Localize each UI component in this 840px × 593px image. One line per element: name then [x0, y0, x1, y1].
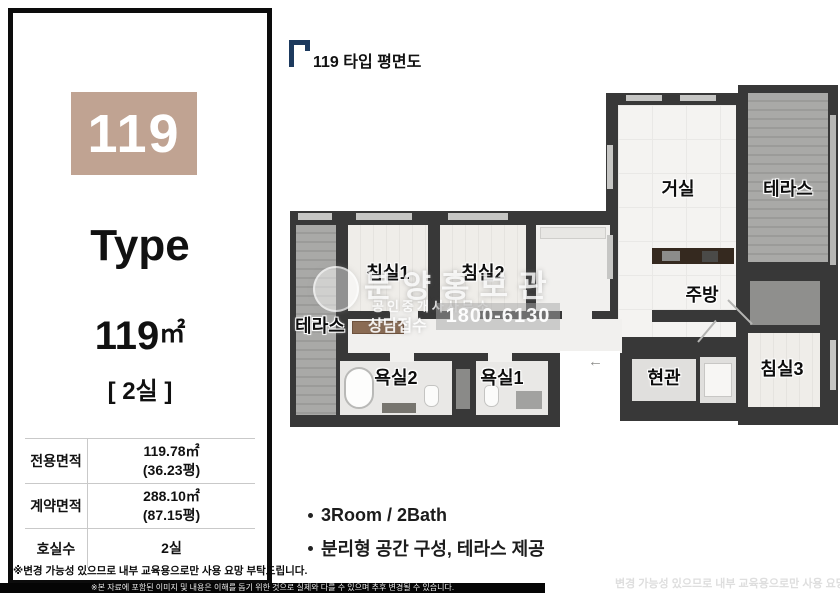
- room-label-terrace-left: 테라스: [295, 312, 345, 338]
- window-terrace-right: [830, 115, 836, 265]
- room-label-bathroom1: 욕실1: [480, 364, 523, 390]
- bathroom2-sink: [382, 403, 416, 413]
- room-label-terrace-top: 테라스: [763, 175, 813, 201]
- plan-title: 119 타입 평면도: [313, 48, 421, 72]
- door-gap-bedroom1: [390, 311, 418, 320]
- area-label: 119㎡: [13, 313, 267, 359]
- window-bedroom1-top: [356, 213, 412, 220]
- bullet-icon: [308, 546, 313, 551]
- room-label-entrance: 현관: [647, 364, 680, 390]
- door-gap-bedroom2: [450, 311, 478, 320]
- brochure-page: 119 Type 119㎡ [ 2실 ] 전용면적 119.78㎡ (36.23…: [0, 0, 840, 593]
- feature-layout: 분리형 공간 구성, 테라스 제공: [321, 535, 545, 561]
- spec-value-line1: 288.10㎡: [88, 487, 255, 506]
- corridor-console: [352, 321, 404, 334]
- bullet-icon: [308, 513, 313, 518]
- bathroom2-toilet: [424, 385, 439, 407]
- entry-arrow-icon: ←: [588, 353, 603, 370]
- type-label: Type: [13, 221, 267, 271]
- spec-value-line1: 119.78㎡: [88, 442, 255, 461]
- room-label-bathroom2: 욕실2: [374, 364, 417, 390]
- spec-label-contract-area: 계약면적: [25, 496, 87, 516]
- unit-info-panel: 119 Type 119㎡ [ 2실 ] 전용면적 119.78㎡ (36.23…: [8, 8, 272, 585]
- spec-label-exclusive-area: 전용면적: [25, 451, 87, 471]
- area-unit: ㎡: [159, 318, 185, 348]
- shoe-closet: [704, 363, 732, 397]
- rooms-count-label: [ 2실 ]: [13, 371, 267, 406]
- room-label-bedroom2: 침실2: [461, 259, 504, 285]
- window-bedroom3-right: [830, 340, 836, 390]
- room-label-bedroom3: 침실3: [760, 355, 803, 381]
- floor-utility: [750, 281, 820, 325]
- feature-room-bath: 3Room / 2Bath: [321, 505, 447, 526]
- window-living-top-1: [626, 95, 662, 101]
- area-value: 119: [95, 314, 160, 358]
- window-living-top-2: [680, 95, 716, 101]
- table-row: 전용면적 119.78㎡ (36.23평): [25, 438, 255, 483]
- unit-number-badge: 119: [71, 92, 197, 175]
- window-living-left-2: [607, 235, 613, 279]
- window-bedroom2-top: [448, 213, 508, 220]
- duct-shaft: [456, 369, 470, 409]
- spec-value-contract-area: 288.10㎡ (87.15평): [87, 484, 255, 528]
- room-label-bedroom1: 침실1: [366, 259, 409, 285]
- list-item: 3Room / 2Bath: [308, 505, 545, 526]
- kitchen-lower-wall: [652, 310, 740, 322]
- table-row: 계약면적 288.10㎡ (87.15평): [25, 483, 255, 528]
- closet-dressing: [540, 227, 606, 239]
- kitchen-sink: [662, 251, 680, 261]
- bottom-disclaimer-bar: ※본 자료에 포함된 이미지 및 내용은 이해를 돕기 위한 것으로 실제와 다…: [0, 583, 545, 593]
- spec-value-line2: (87.15평): [88, 506, 255, 525]
- table-row: 호실수 2실: [25, 528, 255, 568]
- spec-label-room-count: 호실수: [25, 539, 87, 559]
- right-disclaimer-note: 변경 가능성 있으므로 내부 교육용으로만 사용 요망 부탁드립니다: [615, 575, 840, 591]
- list-item: 분리형 공간 구성, 테라스 제공: [308, 535, 545, 561]
- window-terrace-left-top: [298, 213, 332, 220]
- wall-bottom-right: [620, 407, 838, 421]
- room-label-living: 거실: [661, 175, 694, 201]
- spec-value-exclusive-area: 119.78㎡ (36.23평): [87, 439, 255, 483]
- spec-value-line1: 2실: [88, 539, 255, 558]
- spec-table: 전용면적 119.78㎡ (36.23평) 계약면적 288.10㎡ (87.1…: [25, 438, 255, 568]
- bathroom1-mat: [516, 391, 542, 409]
- door-gap-bathroom2: [390, 352, 414, 362]
- window-living-left-1: [607, 145, 613, 189]
- door-gap-bathroom1: [488, 352, 512, 362]
- corner-bracket-icon: [289, 40, 310, 67]
- panel-notice: ※변경 가능성 있으므로 내부 교육용으로만 사용 요망 부탁드립니다.: [13, 563, 267, 578]
- spec-value-line2: (36.23평): [88, 461, 255, 480]
- door-gap-dressing: [562, 311, 592, 320]
- room-label-kitchen: 주방: [685, 281, 718, 307]
- kitchen-cooktop: [702, 251, 718, 262]
- bathtub: [344, 367, 374, 409]
- feature-list: 3Room / 2Bath 분리형 공간 구성, 테라스 제공: [308, 505, 545, 570]
- floor-plan: ← 거실 테라스 주방 침실1 침실2 침실3 욕실1 욕실2 현관 테라스 분…: [290, 85, 838, 430]
